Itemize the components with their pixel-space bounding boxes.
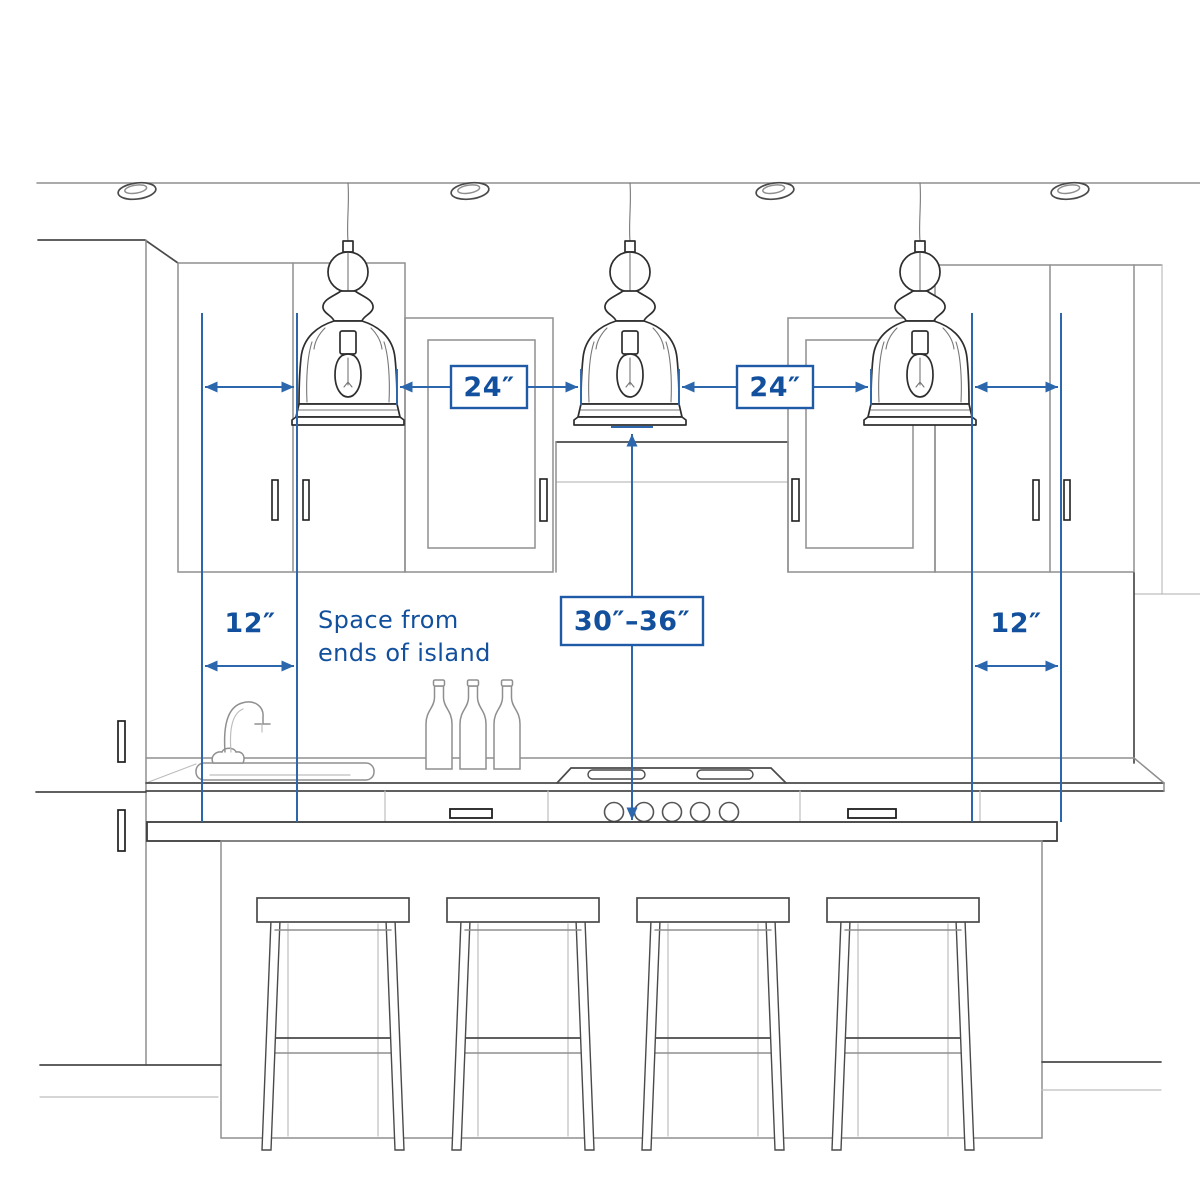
kitchen-pendant-spacing-diagram: 24″ 24″ 30″–36″ 12″ 12″ Space from ends …	[0, 0, 1200, 1200]
pendant-light-3	[864, 183, 976, 425]
bar-stool-1	[257, 898, 409, 1150]
island-body	[221, 841, 1042, 1138]
island-counter-slab	[147, 822, 1057, 841]
cabinet-handle	[540, 479, 547, 521]
wine-bottle	[426, 680, 452, 769]
burner-grate	[697, 770, 753, 779]
dimension-label-height: 30″–36″	[574, 606, 690, 637]
faucet	[212, 702, 270, 763]
left-wall	[36, 240, 178, 1065]
kitchen-sink	[196, 763, 374, 780]
cabinet-handle	[303, 480, 309, 520]
cabinet-handle	[792, 479, 799, 521]
bar-stool-2	[447, 898, 599, 1150]
island-apron	[385, 791, 980, 822]
cabinet-handle	[272, 480, 278, 520]
pendant-light-2	[574, 183, 686, 425]
cooktop-control-knobs	[605, 803, 739, 822]
recessed-light-1	[117, 181, 157, 202]
cooktop	[557, 768, 786, 783]
dimension-label-12-left: 12″	[224, 608, 275, 639]
drawer-handle	[848, 809, 896, 818]
wine-bottle	[460, 680, 486, 769]
bar-stool-4	[827, 898, 979, 1150]
dimension-label-24-left: 24″	[463, 372, 514, 403]
dimension-label-12-right: 12″	[990, 608, 1041, 639]
recessed-light-2	[450, 181, 490, 202]
note-line-1: Space from	[318, 606, 459, 634]
pantry-door-handle	[118, 721, 125, 762]
recessed-light-3	[755, 181, 795, 202]
floor-lines	[40, 1062, 1161, 1097]
wine-bottle	[494, 680, 520, 769]
wine-bottles	[426, 680, 520, 769]
pantry-drawer-handle	[118, 810, 125, 851]
bar-stool-3	[637, 898, 789, 1150]
island-ends-note: Space from ends of island	[318, 606, 491, 667]
right-wall	[1134, 265, 1200, 763]
upper-cabinet-middle-left	[405, 318, 553, 572]
burner-grate	[588, 770, 645, 779]
cabinet-handle	[1064, 480, 1070, 520]
drawer-handle	[450, 809, 492, 818]
recessed-light-4	[1050, 181, 1090, 202]
cabinet-handle	[1033, 480, 1039, 520]
note-line-2: ends of island	[318, 639, 491, 667]
range-hood	[556, 442, 788, 572]
dimension-label-24-right: 24″	[749, 372, 800, 403]
